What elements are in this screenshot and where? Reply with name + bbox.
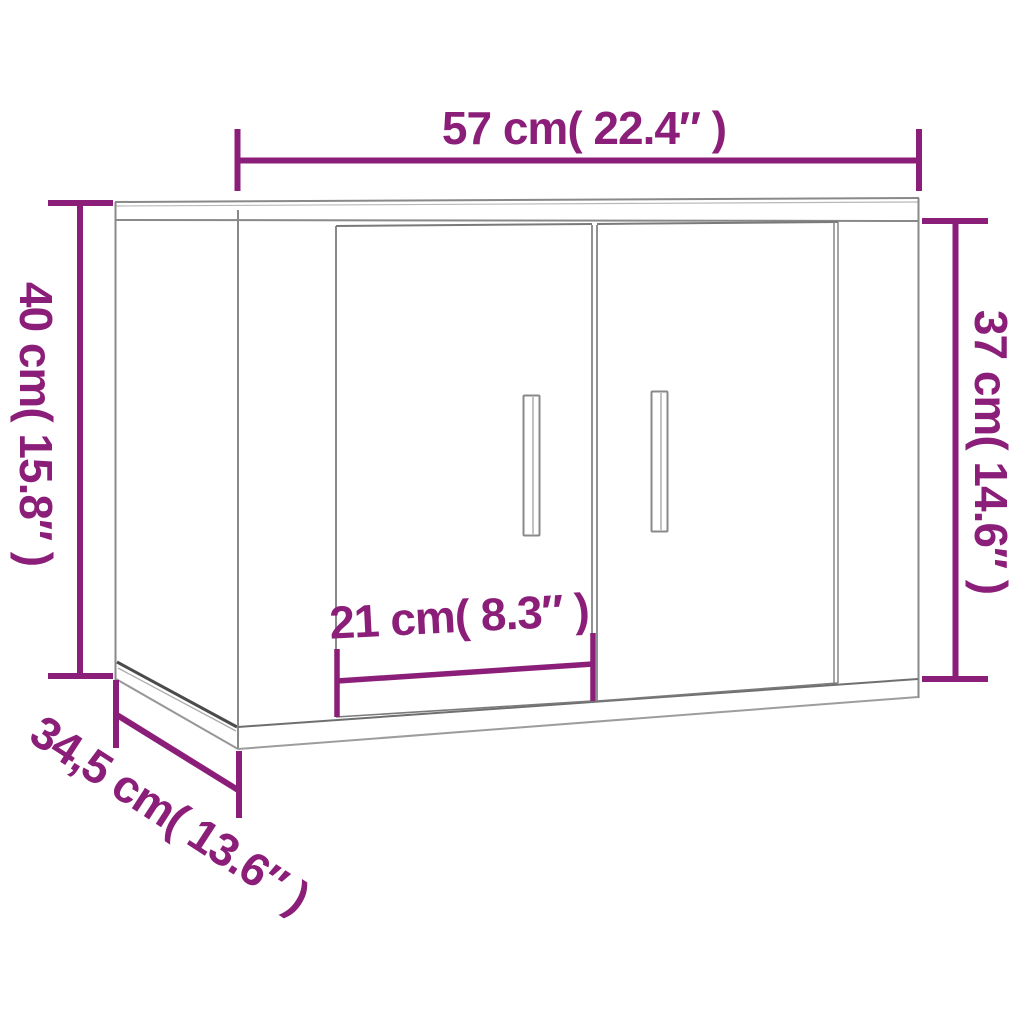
dimension-diagram: 57 cm( 22.4″ ) 40 cm( 15.8″ ) 37 cm( 14.… [0,0,1024,1024]
cabinet-left-panel [116,202,239,749]
dimension-label-height-left: 40 cm( 15.8″ ) [13,282,59,566]
right-door-handle [652,392,668,532]
cabinet-top-panel [115,198,919,221]
cabinet-right-door [597,222,838,701]
dimension-label-door-width: 21 cm( 8.3″ ) [328,586,590,646]
dimension-label-width: 57 cm( 22.4″ ) [442,105,726,151]
dimension-label-height-right: 37 cm( 14.6″ ) [968,310,1014,594]
left-door-handle [524,396,540,536]
cabinet-door-seam [592,225,597,701]
